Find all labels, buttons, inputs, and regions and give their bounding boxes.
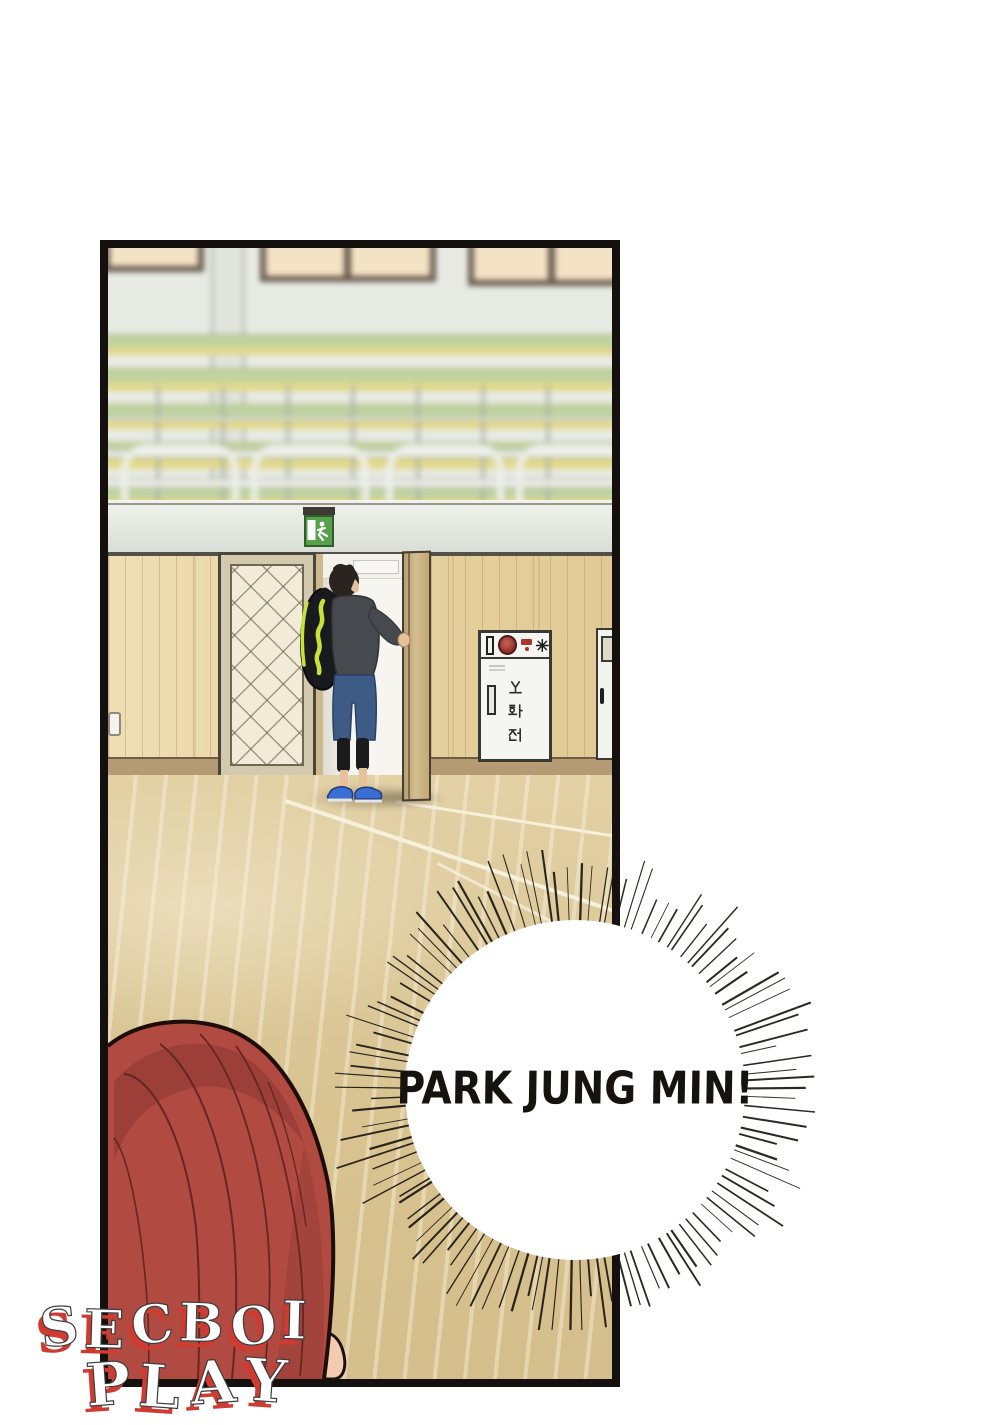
burst-line <box>733 1126 798 1141</box>
beam-band <box>108 500 612 556</box>
burst-line <box>413 1206 465 1260</box>
burst-line <box>418 928 462 973</box>
burst-line <box>337 1142 417 1168</box>
fire-hydrant-cabinet: 소화전 <box>478 630 552 762</box>
watermark-letter: L <box>137 1351 192 1423</box>
burst-line <box>690 1209 721 1241</box>
speech-bubble-text: PARK JUNG MIN! <box>385 1062 766 1115</box>
window-mullion <box>548 240 555 286</box>
wall-switch <box>108 712 121 736</box>
railing-loop <box>251 444 369 508</box>
exit-sign-bracket <box>303 507 335 515</box>
sunburst-icon <box>536 639 549 652</box>
railing-bar <box>100 416 620 421</box>
burst-line <box>570 1256 572 1330</box>
burst-line <box>616 1247 631 1307</box>
window-mullion <box>344 240 351 282</box>
burst-line <box>451 1223 481 1266</box>
burst-line <box>726 1003 810 1034</box>
railing-loop <box>516 444 620 508</box>
alarm-indicator <box>521 639 532 651</box>
watermark-letter: Y <box>242 1345 298 1417</box>
railing-loop <box>121 444 239 508</box>
alarm-button-icon <box>525 647 529 651</box>
burst-line <box>373 1161 424 1185</box>
burst-line <box>391 997 428 1016</box>
burst-line <box>604 853 617 925</box>
bleacher-row <box>100 368 620 391</box>
burst-line <box>709 1177 784 1226</box>
burst-line <box>341 1125 413 1140</box>
burst-line <box>667 905 703 956</box>
burst-line <box>400 983 434 1004</box>
burst-line <box>537 1249 551 1330</box>
burst-line <box>656 909 678 947</box>
burst-line <box>604 1253 613 1301</box>
burst-line <box>458 881 497 950</box>
watermark-letter: A <box>188 1346 247 1419</box>
fire-alarm-panel <box>481 633 549 659</box>
burst-line <box>527 851 542 926</box>
burst-line <box>588 1256 591 1296</box>
burst-line <box>416 912 467 969</box>
burst-line <box>363 1168 430 1204</box>
bleacher-row <box>100 334 620 355</box>
watermark-letter: S <box>37 1294 88 1361</box>
running-man-icon <box>306 517 332 545</box>
watermark-letter: P <box>84 1348 142 1421</box>
alarm-light-icon <box>521 639 532 645</box>
hangul-hwa <box>508 704 523 719</box>
burst-line <box>512 1245 531 1311</box>
burst-line <box>580 1258 582 1330</box>
burst-line <box>736 1116 806 1127</box>
right-edge-door <box>596 628 618 760</box>
cabinet-door: 소화전 <box>481 661 549 762</box>
burst-line <box>727 1147 789 1170</box>
burst-line <box>630 869 653 935</box>
door-handle <box>600 688 604 704</box>
exit-sign <box>304 515 334 547</box>
window <box>468 240 620 286</box>
burst-line <box>681 907 738 971</box>
door-window <box>601 636 617 662</box>
player-body <box>328 564 411 801</box>
burst-line <box>423 1213 467 1263</box>
fire-alarm-bell-icon <box>498 635 518 655</box>
watermark-letter: B <box>178 1292 230 1355</box>
hangul-jeon <box>508 728 523 743</box>
burst-line <box>580 863 582 926</box>
watermark-line2: PLAY <box>85 1346 296 1419</box>
alarm-slot-icon <box>486 636 494 655</box>
burst-line <box>409 1197 447 1228</box>
hangul-so <box>508 680 523 695</box>
burst-line <box>599 867 608 925</box>
burst-line <box>410 934 458 979</box>
burst-line <box>356 1045 416 1058</box>
railing-loop <box>386 444 504 508</box>
burst-line <box>541 850 553 931</box>
burst-line <box>503 855 527 934</box>
burst-line <box>567 867 569 929</box>
burst-line <box>499 1244 521 1307</box>
player-figure <box>293 563 423 808</box>
burst-line <box>662 1225 701 1285</box>
burst-line <box>551 1248 560 1330</box>
burst-line <box>670 1228 697 1267</box>
watermark-letter: I <box>281 1289 313 1352</box>
burst-line <box>714 972 779 1009</box>
bleachers-blurred <box>100 240 620 518</box>
burst-line <box>614 879 626 930</box>
window <box>104 240 204 272</box>
burst-line <box>407 956 448 989</box>
